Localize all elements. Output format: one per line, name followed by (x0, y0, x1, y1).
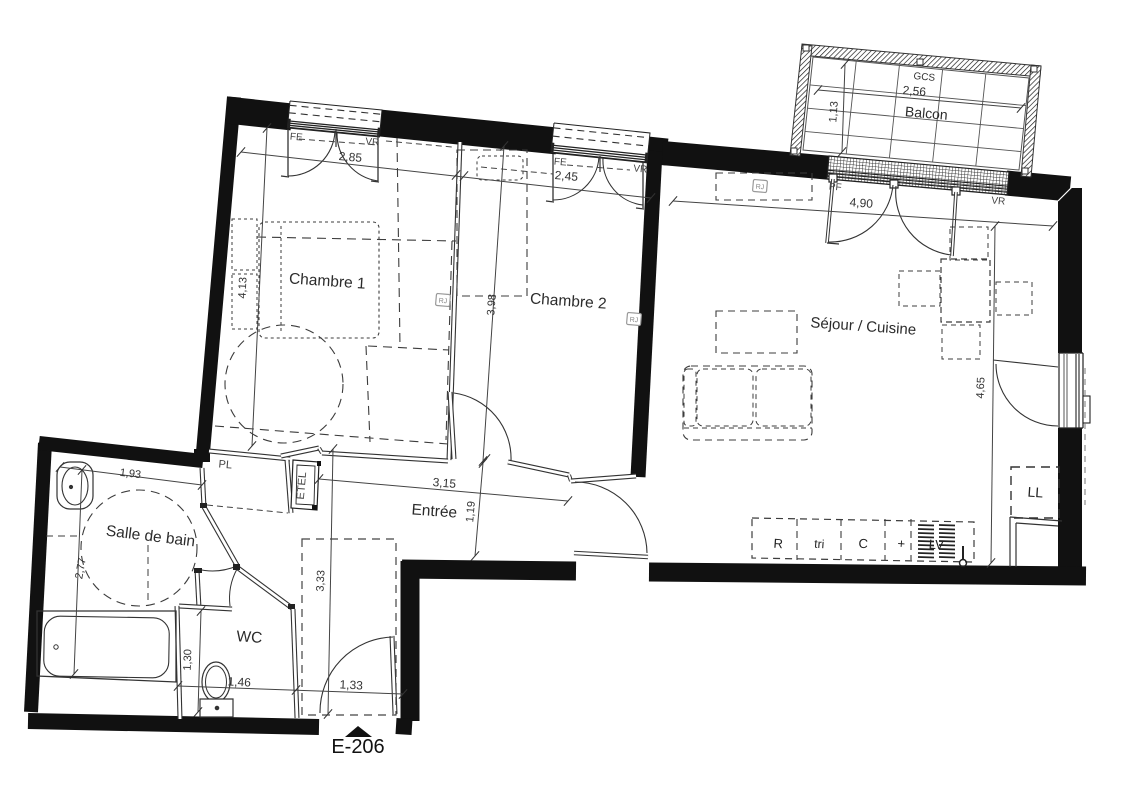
svg-text:3,33: 3,33 (314, 570, 327, 592)
svg-text:4,65: 4,65 (974, 377, 987, 399)
svg-text:WC: WC (236, 628, 263, 647)
svg-text:VR: VR (365, 136, 380, 148)
svg-text:RJ: RJ (755, 184, 764, 192)
svg-text:4,90: 4,90 (849, 195, 874, 211)
svg-text:3,98: 3,98 (485, 294, 498, 316)
svg-text:+: + (897, 536, 906, 551)
svg-text:2,56: 2,56 (902, 83, 927, 99)
svg-text:E-206: E-206 (331, 736, 384, 758)
svg-text:LV: LV (928, 537, 944, 553)
svg-text:RJ: RJ (629, 317, 638, 325)
svg-text:2,45: 2,45 (554, 168, 579, 184)
svg-text:Entrée: Entrée (411, 501, 458, 521)
svg-text:tri: tri (814, 537, 825, 552)
svg-text:1,19: 1,19 (464, 501, 478, 523)
svg-text:3,15: 3,15 (432, 475, 457, 491)
svg-text:FE: FE (289, 131, 303, 143)
svg-text:VR: VR (991, 195, 1006, 207)
svg-text:GCS: GCS (913, 71, 936, 84)
svg-text:1,13: 1,13 (827, 101, 840, 123)
svg-text:C: C (858, 536, 868, 552)
svg-text:PF: PF (828, 181, 842, 193)
svg-text:1,33: 1,33 (339, 677, 363, 692)
svg-text:R: R (773, 536, 783, 552)
svg-text:2,85: 2,85 (338, 149, 363, 165)
svg-text:PL: PL (218, 458, 232, 471)
svg-text:4,13: 4,13 (236, 277, 249, 299)
svg-text:FE: FE (553, 156, 567, 168)
svg-text:LL: LL (1027, 483, 1044, 500)
svg-text:RJ: RJ (438, 298, 447, 306)
svg-text:ETEL: ETEL (295, 472, 309, 500)
svg-text:VR: VR (633, 163, 648, 175)
svg-text:1,46: 1,46 (227, 674, 251, 689)
svg-text:1,30: 1,30 (182, 649, 195, 671)
